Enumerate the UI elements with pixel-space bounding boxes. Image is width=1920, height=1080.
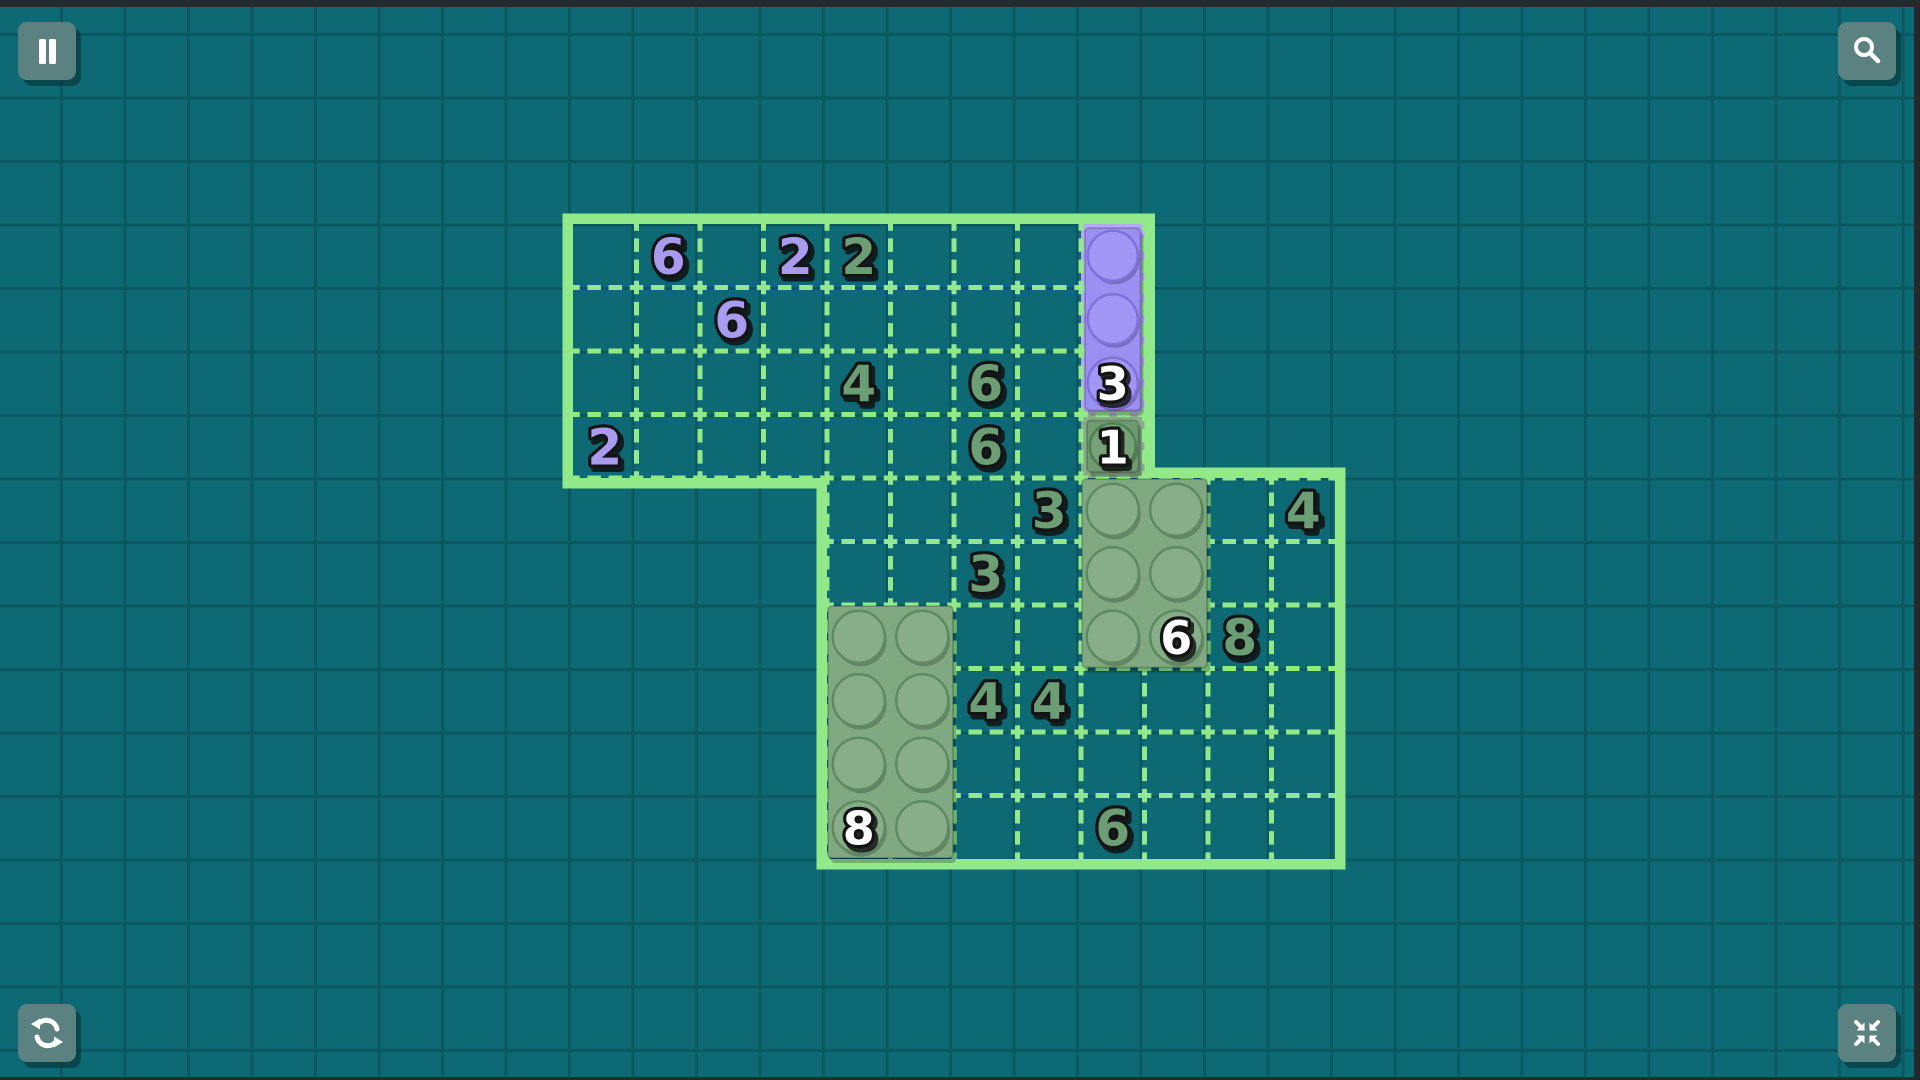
clue-number: 66 (1095, 799, 1133, 861)
pause-icon (23, 27, 71, 75)
clue-number: 22 (778, 228, 816, 290)
clue-number: 44 (1032, 672, 1070, 734)
svg-text:2: 2 (841, 228, 876, 286)
green-brick-2x4[interactable]: 88 (828, 606, 956, 863)
svg-text:4: 4 (1286, 482, 1321, 540)
purple-brick-1x3[interactable]: 33 (1085, 228, 1144, 416)
clue-number: 66 (968, 355, 1006, 417)
svg-text:6: 6 (1095, 799, 1130, 857)
svg-text:6: 6 (651, 228, 686, 286)
svg-text:6: 6 (714, 291, 749, 349)
exit-fullscreen-button[interactable] (1838, 1004, 1896, 1062)
restart-button[interactable] (18, 1004, 76, 1062)
clue-number: 66 (714, 291, 752, 353)
svg-text:6: 6 (968, 418, 1003, 476)
svg-text:6: 6 (968, 355, 1003, 413)
compress-icon (1843, 1009, 1891, 1057)
game-screen: 33116688662222664466226633443388444466 (0, 0, 1920, 1080)
clue-number: 66 (651, 228, 689, 290)
puzzle-board[interactable]: 33116688662222664466226633443388444466 (0, 0, 1920, 1080)
clue-number: 66 (968, 418, 1006, 480)
svg-text:2: 2 (587, 418, 622, 476)
clue-number: 22 (587, 418, 625, 480)
svg-text:3: 3 (968, 545, 1003, 603)
svg-text:4: 4 (841, 355, 876, 413)
svg-text:4: 4 (1032, 672, 1067, 730)
svg-text:8: 8 (843, 801, 875, 855)
pause-button[interactable] (18, 22, 76, 80)
zoom-button[interactable] (1838, 22, 1896, 80)
svg-text:8: 8 (1222, 609, 1257, 667)
clue-number: 22 (841, 228, 879, 290)
svg-text:3: 3 (1032, 482, 1067, 540)
svg-text:6: 6 (1160, 611, 1192, 665)
restart-icon (23, 1009, 71, 1057)
stud-count-label: 66 (1160, 611, 1195, 669)
right-edge-bar (1914, 0, 1920, 1080)
svg-text:4: 4 (968, 672, 1003, 730)
top-edge-bar (0, 0, 1920, 7)
clue-number: 44 (841, 355, 879, 417)
stud-count-label: 11 (1097, 420, 1132, 478)
stud-count-label: 33 (1097, 357, 1132, 415)
magnifier-icon (1843, 27, 1891, 75)
green-brick-1x1[interactable]: 11 (1087, 420, 1142, 478)
clue-number: 44 (1286, 482, 1324, 544)
svg-text:1: 1 (1097, 420, 1129, 474)
clue-number: 88 (1222, 609, 1260, 671)
clue-number: 44 (968, 672, 1006, 734)
svg-text:2: 2 (778, 228, 813, 286)
svg-text:3: 3 (1097, 357, 1129, 411)
clue-number: 33 (968, 545, 1006, 607)
clue-number: 33 (1032, 482, 1070, 544)
stud-count-label: 88 (843, 801, 878, 859)
green-brick-2x3[interactable]: 66 (1082, 479, 1210, 673)
